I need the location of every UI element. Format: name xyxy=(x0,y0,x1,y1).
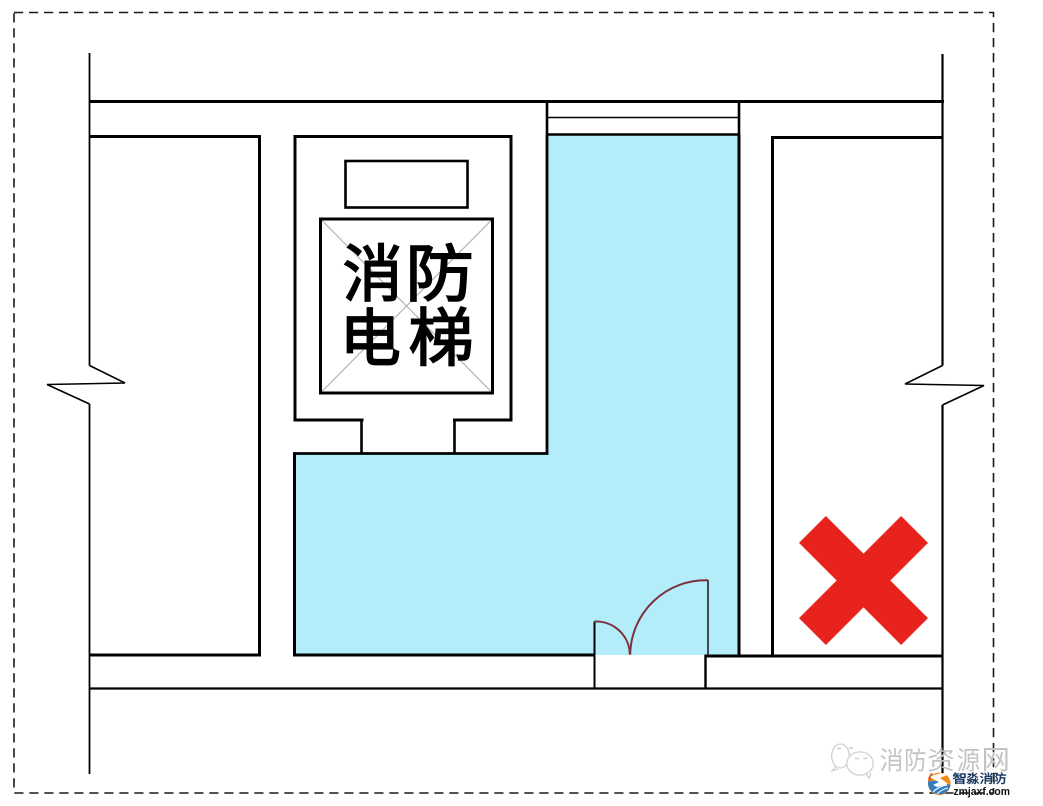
svg-text:zmjaxf.com: zmjaxf.com xyxy=(954,786,1011,798)
